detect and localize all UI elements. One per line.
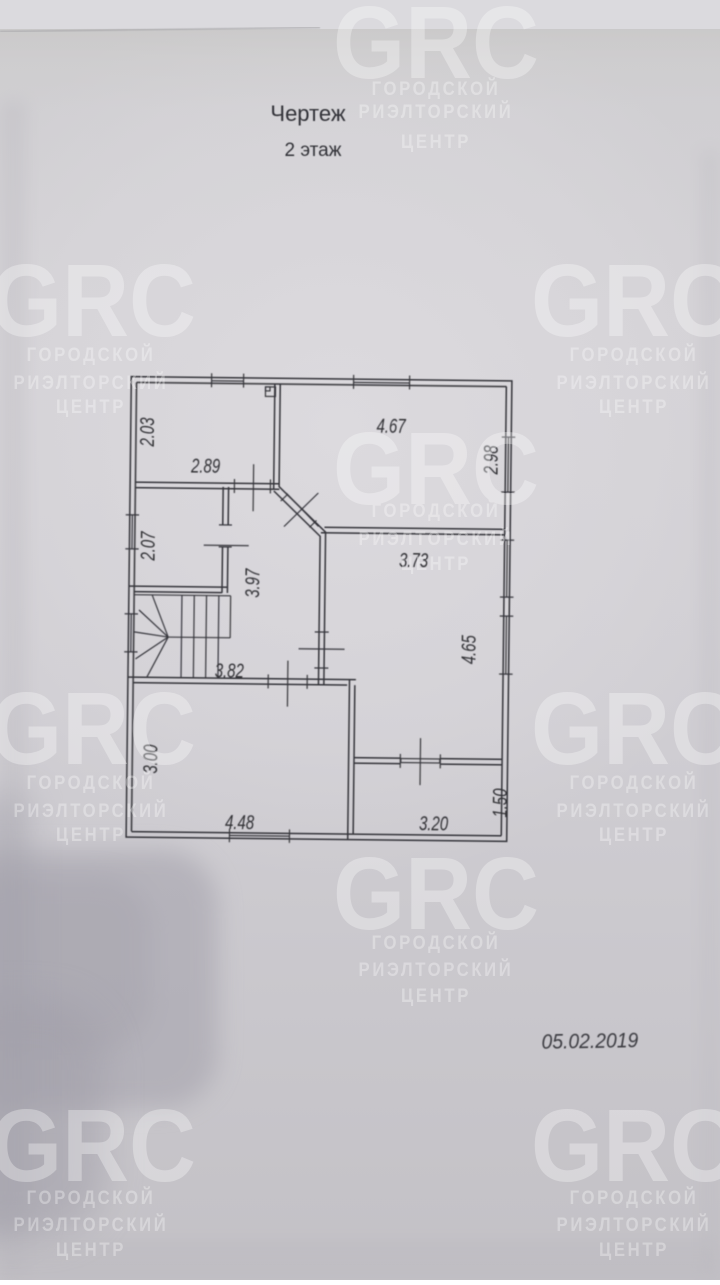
svg-text:GRC: GRC bbox=[0, 1087, 196, 1203]
svg-text:ЦЕНТР: ЦЕНТР bbox=[56, 1239, 126, 1260]
svg-text:ГОРОДСКОЙ: ГОРОДСКОЙ bbox=[372, 77, 501, 99]
svg-text:РИЭЛТОРСКИЙ: РИЭЛТОРСКИЙ bbox=[359, 100, 514, 122]
svg-text:РИЭЛТОРСКИЙ: РИЭЛТОРСКИЙ bbox=[557, 799, 712, 821]
svg-text:GRC: GRC bbox=[0, 242, 196, 358]
svg-text:РИЭЛТОРСКИЙ: РИЭЛТОРСКИЙ bbox=[557, 371, 712, 393]
svg-text:05.02.2019: 05.02.2019 bbox=[541, 1028, 638, 1054]
svg-text:2.89: 2.89 bbox=[190, 454, 220, 477]
svg-text:4.65: 4.65 bbox=[457, 634, 480, 664]
svg-text:ЦЕНТР: ЦЕНТР bbox=[401, 131, 471, 152]
svg-text:2 этаж: 2 этаж bbox=[285, 140, 342, 161]
svg-text:РИЭЛТОРСКИЙ: РИЭЛТОРСКИЙ bbox=[14, 1213, 169, 1235]
svg-text:ГОРОДСКОЙ: ГОРОДСКОЙ bbox=[27, 771, 156, 793]
svg-text:РИЭЛТОРСКИЙ: РИЭЛТОРСКИЙ bbox=[557, 1213, 712, 1235]
svg-text:ЦЕНТР: ЦЕНТР bbox=[401, 553, 471, 574]
svg-text:ГОРОДСКОЙ: ГОРОДСКОЙ bbox=[570, 1186, 699, 1208]
svg-text:ЦЕНТР: ЦЕНТР bbox=[599, 824, 669, 845]
svg-text:2.07: 2.07 bbox=[136, 531, 159, 562]
svg-text:3.97: 3.97 bbox=[241, 568, 264, 598]
svg-text:РИЭЛТОРСКИЙ: РИЭЛТОРСКИЙ bbox=[14, 371, 169, 393]
svg-text:ЦЕНТР: ЦЕНТР bbox=[401, 985, 471, 1006]
svg-text:РИЭЛТОРСКИЙ: РИЭЛТОРСКИЙ bbox=[359, 527, 514, 549]
svg-text:Чертеж: Чертеж bbox=[270, 101, 345, 126]
svg-text:GRC: GRC bbox=[531, 670, 720, 786]
svg-text:4.48: 4.48 bbox=[225, 811, 254, 834]
svg-text:ГОРОДСКОЙ: ГОРОДСКОЙ bbox=[372, 931, 501, 953]
svg-text:GRC: GRC bbox=[531, 242, 720, 358]
svg-text:ГОРОДСКОЙ: ГОРОДСКОЙ bbox=[372, 499, 501, 521]
svg-text:ЦЕНТР: ЦЕНТР bbox=[599, 1239, 669, 1260]
svg-text:1.50: 1.50 bbox=[488, 788, 511, 817]
svg-text:3.82: 3.82 bbox=[215, 659, 244, 682]
svg-text:РИЭЛТОРСКИЙ: РИЭЛТОРСКИЙ bbox=[359, 958, 514, 980]
svg-text:GRC: GRC bbox=[0, 670, 196, 786]
svg-text:ЦЕНТР: ЦЕНТР bbox=[56, 824, 126, 845]
svg-text:GRC: GRC bbox=[531, 1087, 720, 1203]
svg-text:ГОРОДСКОЙ: ГОРОДСКОЙ bbox=[27, 1186, 156, 1208]
svg-text:2.03: 2.03 bbox=[136, 417, 159, 447]
svg-text:3.20: 3.20 bbox=[419, 812, 448, 835]
svg-text:ЦЕНТР: ЦЕНТР bbox=[56, 396, 126, 417]
svg-text:ЦЕНТР: ЦЕНТР bbox=[599, 396, 669, 417]
svg-text:РИЭЛТОРСКИЙ: РИЭЛТОРСКИЙ bbox=[14, 799, 169, 821]
svg-text:ГОРОДСКОЙ: ГОРОДСКОЙ bbox=[570, 771, 699, 793]
svg-text:ГОРОДСКОЙ: ГОРОДСКОЙ bbox=[570, 343, 699, 365]
svg-text:ГОРОДСКОЙ: ГОРОДСКОЙ bbox=[27, 343, 156, 365]
